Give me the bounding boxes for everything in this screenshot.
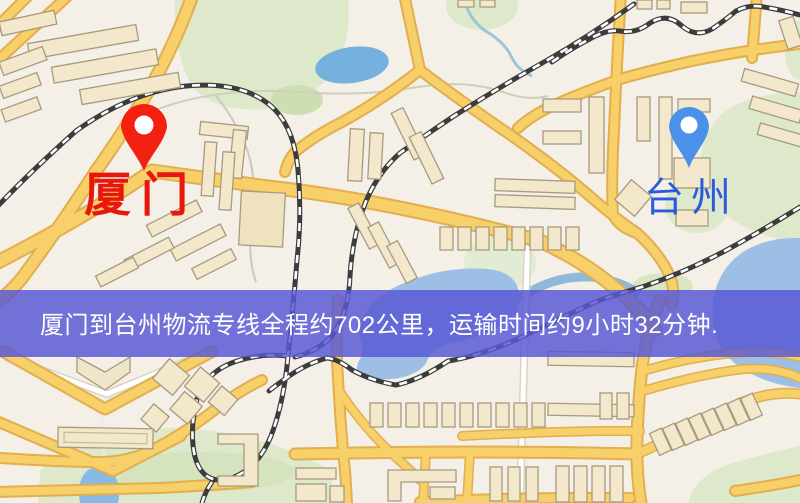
route-info-text: 厦门到台州物流专线全程约702公里，运输时间约9小时32分钟. xyxy=(0,305,718,342)
route-info-banner: 厦门到台州物流专线全程约702公里，运输时间约9小时32分钟. xyxy=(0,290,800,357)
destination-marker[interactable] xyxy=(665,102,713,170)
origin-pin-icon xyxy=(116,99,172,173)
destination-pin-icon xyxy=(665,102,713,170)
origin-city-label: 厦门 xyxy=(84,171,198,218)
map-viewport[interactable]: 厦门 台州 厦门到台州物流专线全程约702公里，运输时间约9小时32分钟. xyxy=(0,0,800,503)
map-artwork xyxy=(0,0,800,503)
destination-city-label: 台州 xyxy=(644,178,738,218)
origin-marker[interactable] xyxy=(116,99,172,173)
